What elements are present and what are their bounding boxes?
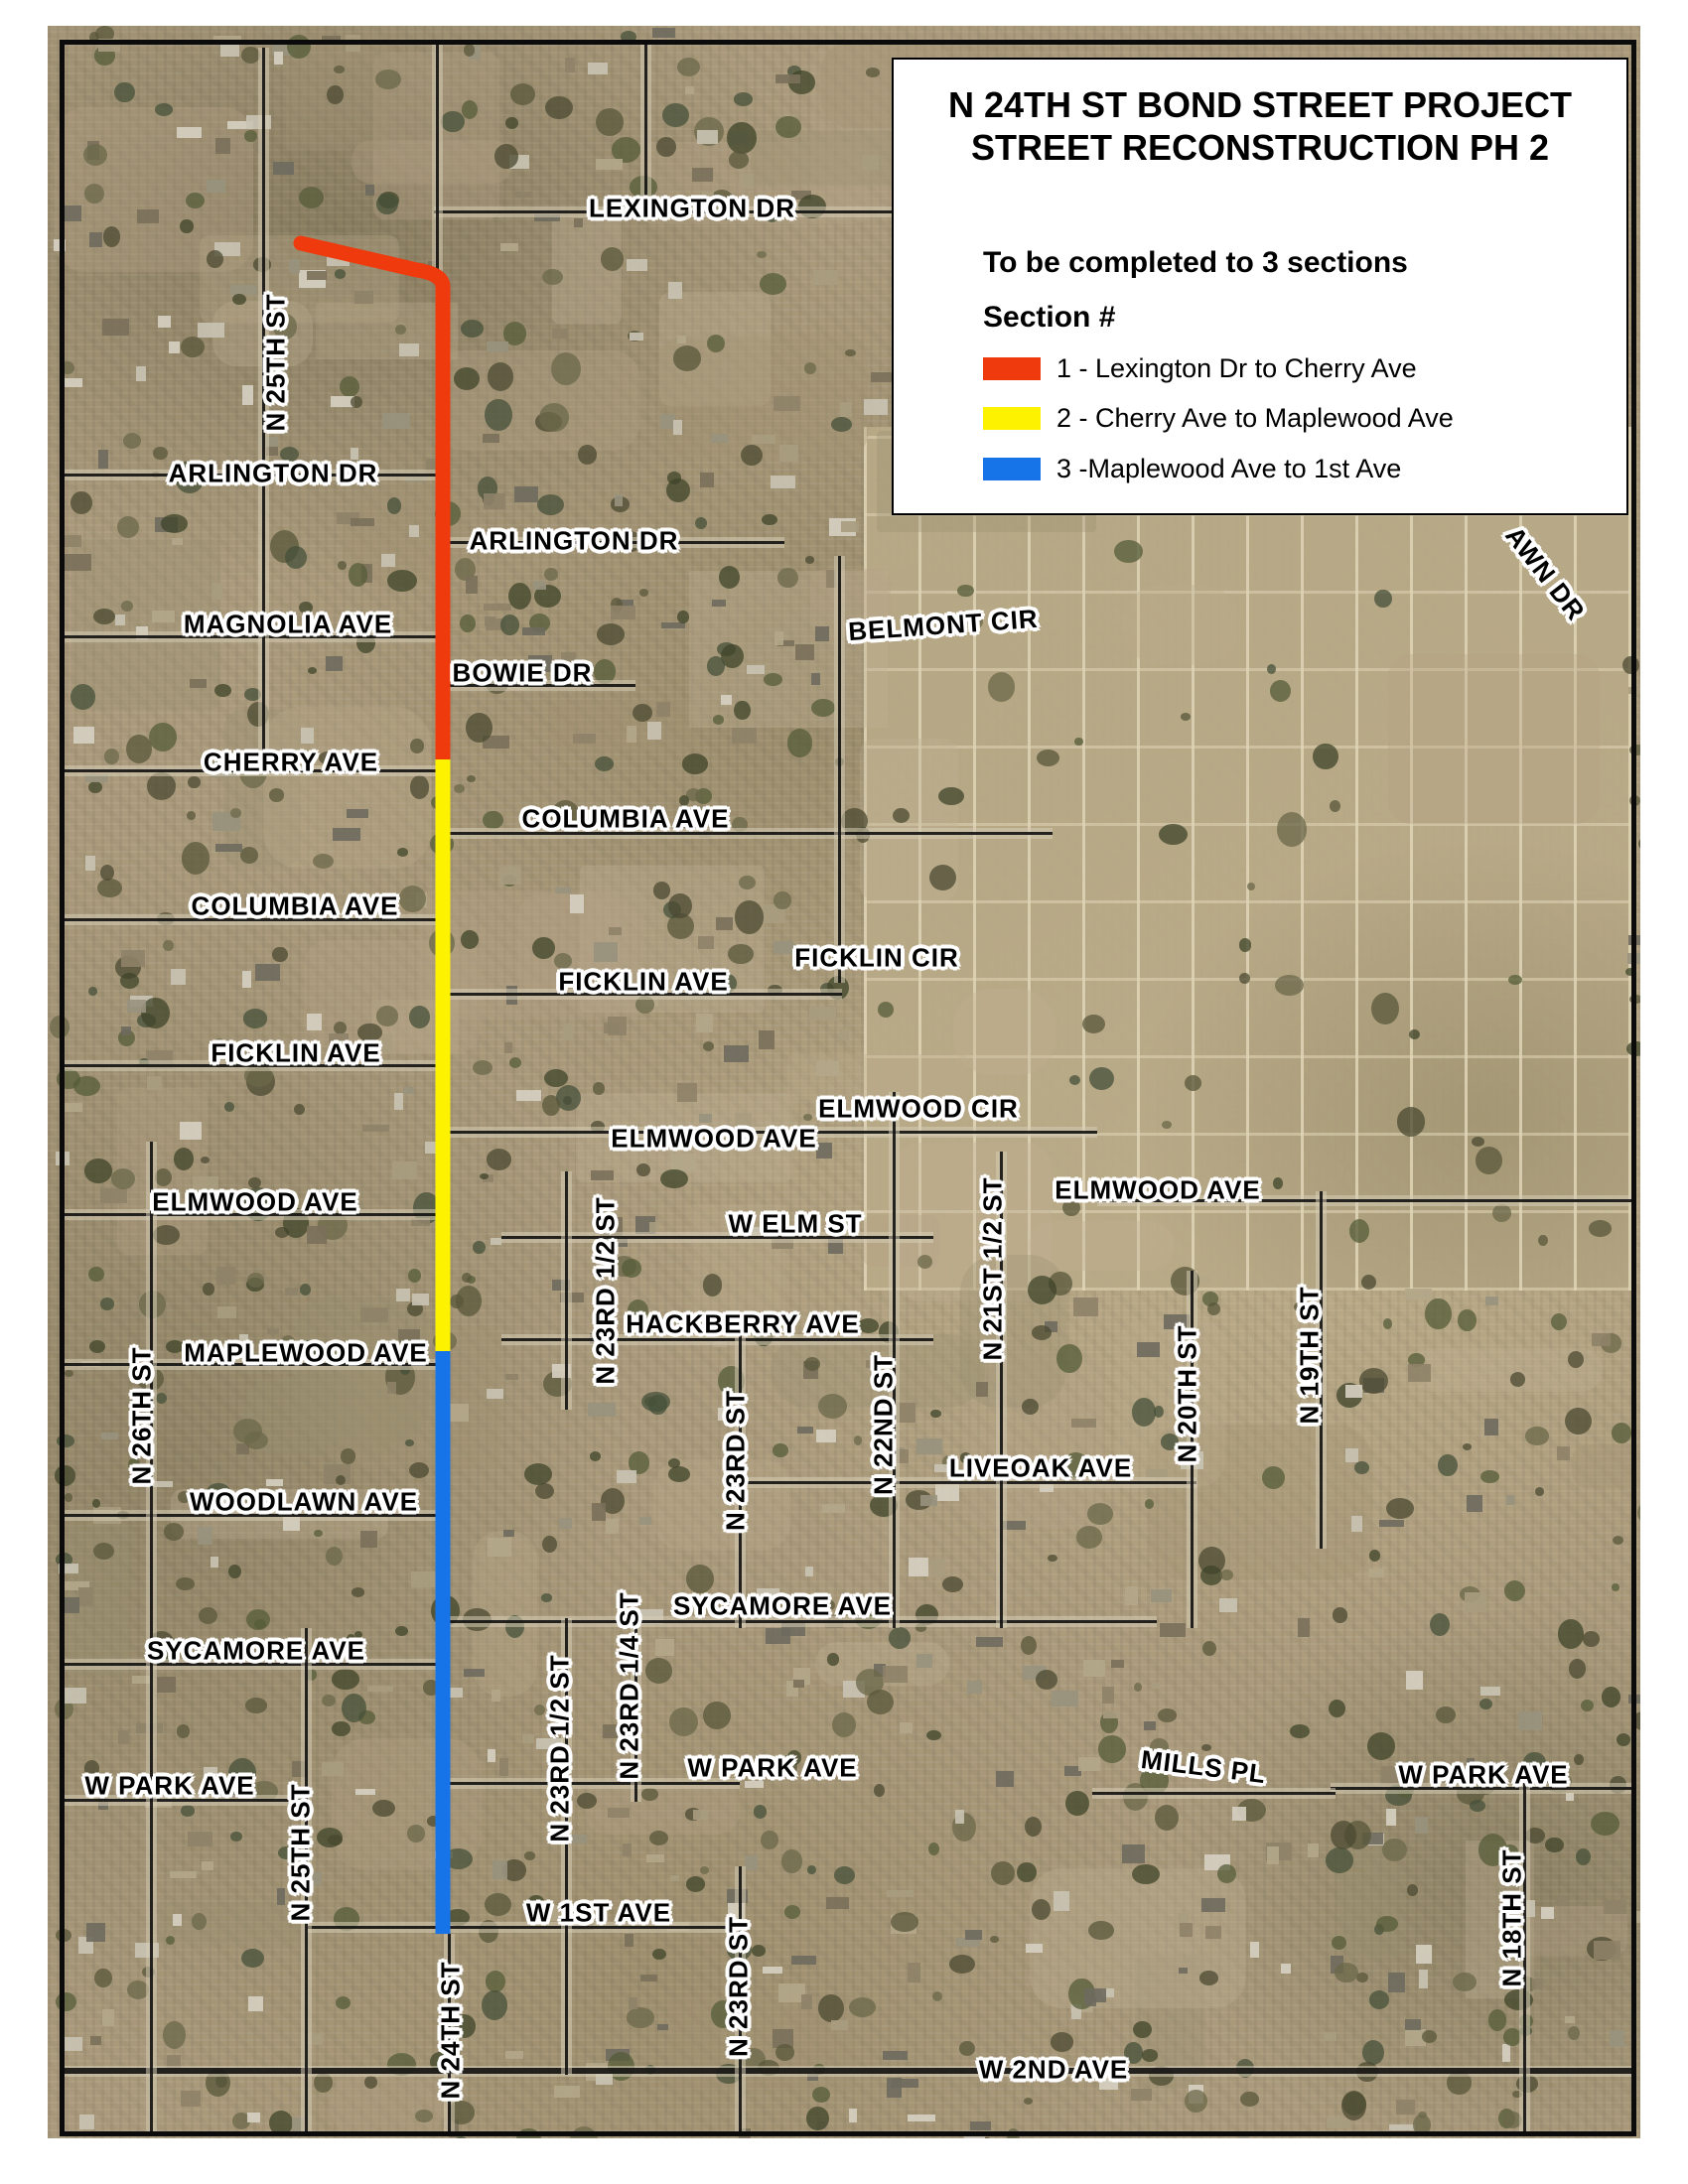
street-label: ELMWOOD AVE — [1055, 1175, 1260, 1206]
street-label: WOODLAWN AVE — [190, 1487, 418, 1518]
legend-item-section-1: 1 - Lexington Dr to Cherry Ave — [983, 355, 1417, 381]
street-label: MAGNOLIA AVE — [184, 610, 392, 640]
street-label: N 25TH ST — [286, 1783, 317, 1921]
street-label: N 23RD 1/4 ST — [615, 1591, 645, 1779]
legend-section-heading: Section # — [983, 301, 1115, 335]
street-label: LEXINGTON DR — [589, 194, 795, 224]
street-label: W PARK AVE — [1398, 1760, 1568, 1791]
legend-swatch-red — [983, 357, 1041, 380]
street-label: ELMWOOD AVE — [152, 1187, 357, 1218]
street-label: N 23RD ST — [721, 1390, 752, 1531]
street-label: N 26TH ST — [127, 1346, 158, 1484]
street-label: N 21ST 1/2 ST — [978, 1177, 1009, 1361]
street-label: LIVEOAK AVE — [949, 1453, 1132, 1484]
street-label: W ELM ST — [728, 1209, 862, 1240]
legend-title-line2: STREET RECONSTRUCTION PH 2 — [894, 126, 1626, 169]
legend-item-label: 1 - Lexington Dr to Cherry Ave — [1056, 353, 1417, 384]
legend-item-section-2: 2 - Cherry Ave to Maplewood Ave — [983, 405, 1454, 431]
street-label: N 18TH ST — [1497, 1848, 1528, 1986]
street-label: COLUMBIA AVE — [192, 891, 399, 922]
project-map-page: LEXINGTON DRN 25TH STARLINGTON DRARLINGT… — [0, 0, 1688, 2184]
street-label: HACKBERRY AVE — [626, 1309, 859, 1340]
legend-title-line1: N 24TH ST BOND STREET PROJECT — [894, 83, 1626, 126]
street-label: COLUMBIA AVE — [522, 804, 730, 835]
street-label: W PARK AVE — [687, 1753, 857, 1784]
street-label: SYCAMORE AVE — [673, 1591, 892, 1622]
street-label: N 19TH ST — [1295, 1286, 1326, 1424]
street-label: N 23RD ST — [724, 1916, 755, 2057]
legend-item-section-3: 3 -Maplewood Ave to 1st Ave — [983, 456, 1401, 481]
legend-item-label: 3 -Maplewood Ave to 1st Ave — [1056, 454, 1401, 484]
street-label: FICKLIN AVE — [211, 1038, 380, 1069]
legend-swatch-yellow — [983, 407, 1041, 430]
legend-subtitle: To be completed to 3 sections — [983, 246, 1408, 280]
street-label: FICKLIN AVE — [558, 967, 728, 998]
street-label: N 22ND ST — [869, 1354, 900, 1495]
legend-title: N 24TH ST BOND STREET PROJECT STREET REC… — [894, 83, 1626, 169]
street-label: ELMWOOD CIR — [818, 1094, 1019, 1125]
street-label: N 23RD 1/2 ST — [545, 1654, 576, 1842]
legend-swatch-blue — [983, 458, 1041, 480]
street-label: MAPLEWOOD AVE — [184, 1338, 428, 1369]
street-label: ELMWOOD AVE — [611, 1124, 816, 1155]
project-section-1 — [301, 243, 443, 759]
street-label: N 23RD 1/2 ST — [591, 1196, 622, 1384]
legend-item-label: 2 - Cherry Ave to Maplewood Ave — [1056, 403, 1454, 434]
street-label: W 1ST AVE — [526, 1898, 671, 1929]
street-label: N 20TH ST — [1173, 1324, 1203, 1462]
street-label: N 24TH ST — [436, 1961, 467, 2099]
street-label: W PARK AVE — [84, 1771, 254, 1802]
street-label: SYCAMORE AVE — [147, 1636, 365, 1667]
street-label: ARLINGTON DR — [470, 526, 679, 557]
street-label: BOWIE DR — [453, 658, 593, 689]
street-label: N 25TH ST — [261, 293, 292, 431]
street-label: ARLINGTON DR — [169, 459, 378, 489]
street-label: W 2ND AVE — [979, 2055, 1129, 2086]
legend-box: N 24TH ST BOND STREET PROJECT STREET REC… — [892, 58, 1628, 515]
street-label: CHERRY AVE — [204, 748, 378, 778]
street-label: FICKLIN CIR — [794, 943, 959, 974]
